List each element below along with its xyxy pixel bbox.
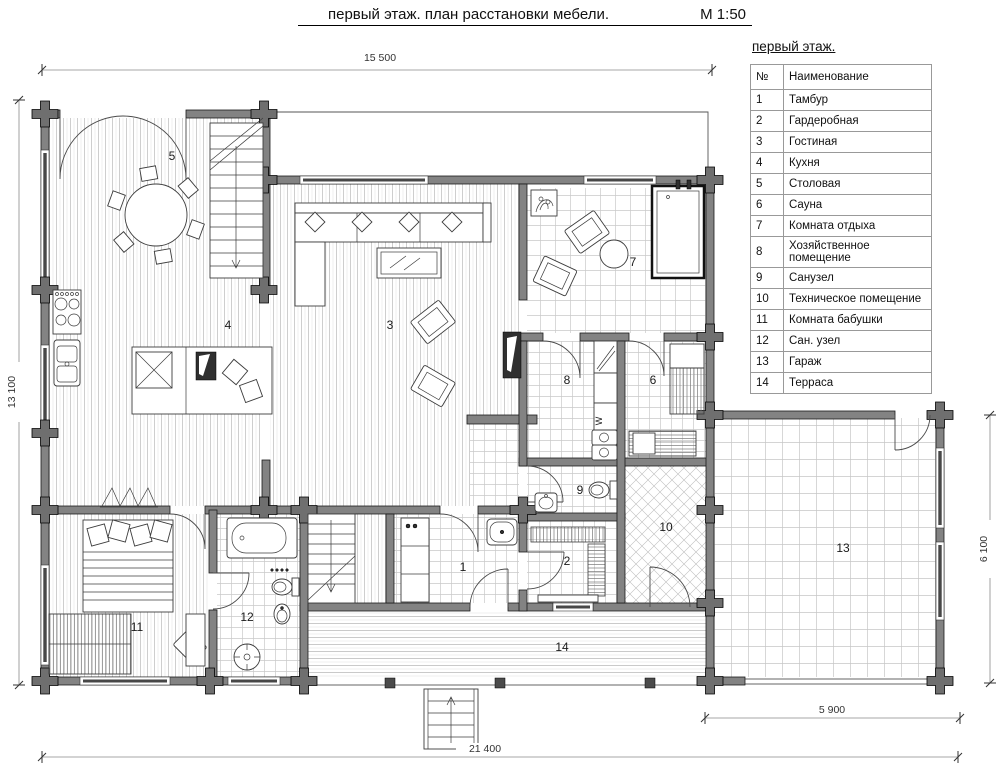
table-row: 7Комната отдыха <box>751 216 932 237</box>
coffee-table <box>377 248 441 278</box>
table-row: 2Гардеробная <box>751 111 932 132</box>
table-row: 3Гостиная <box>751 132 932 153</box>
washer-label: W <box>594 416 604 425</box>
table-row: 9Санузел <box>751 268 932 289</box>
dim-bottom-right: 5 900 <box>819 704 845 716</box>
room-label-12: 12 <box>240 610 254 624</box>
dim-right: 6 100 <box>978 536 990 562</box>
room-label-10: 10 <box>659 520 673 534</box>
drawing-title: первый этаж. план расстановки мебели. М … <box>298 6 752 26</box>
table-row: 1Тамбур <box>751 90 932 111</box>
entry-steps <box>424 689 478 749</box>
utility-cabinets: W <box>594 341 617 430</box>
col-number: № <box>751 65 784 90</box>
scale-label: М 1:50 <box>700 6 746 23</box>
room-label-14: 14 <box>555 640 569 654</box>
shower-tray <box>487 519 517 545</box>
terrace-posts <box>385 678 655 688</box>
laundry-sinks <box>592 430 617 460</box>
table-row: 4Кухня <box>751 153 932 174</box>
vestibule-cabinet <box>401 518 429 602</box>
kitchen-island <box>132 347 272 414</box>
table-row: 12Сан. узел <box>751 331 932 352</box>
pool <box>652 180 704 278</box>
dim-left: 13 100 <box>6 376 18 408</box>
room-label-8: 8 <box>564 373 571 387</box>
table-row: 13Гараж <box>751 352 932 373</box>
table-row: 8Хозяйственное помещение <box>751 237 932 268</box>
dim-top: 15 500 <box>364 52 396 64</box>
plant <box>531 190 557 216</box>
dim-bottom: 21 400 <box>469 743 501 755</box>
room-legend: первый этаж. № Наименование 1Тамбур 2Гар… <box>750 38 938 394</box>
table-header-row: № Наименование <box>751 65 932 90</box>
kitchen-sink <box>54 340 80 386</box>
room-label-1: 1 <box>460 560 467 574</box>
room-table: № Наименование 1Тамбур 2Гардеробная 3Гос… <box>750 64 932 394</box>
room-label-3: 3 <box>387 318 394 332</box>
wardrobe-11 <box>49 614 131 674</box>
wc-basin <box>535 493 557 512</box>
room-label-6: 6 <box>650 373 657 387</box>
page-title: первый этаж. план расстановки мебели. <box>328 6 609 23</box>
room-label-11: 11 <box>131 620 144 634</box>
kitchen-stove <box>53 290 81 334</box>
room-label-5: 5 <box>169 149 176 163</box>
room-label-2: 2 <box>564 554 571 568</box>
table-row: 6Сауна <box>751 195 932 216</box>
legend-header: первый этаж. <box>752 39 835 54</box>
bidet <box>274 604 290 624</box>
col-name: Наименование <box>784 65 932 90</box>
room-label-7: 7 <box>630 255 637 269</box>
table-row: 5Столовая <box>751 174 932 195</box>
room-label-9: 9 <box>577 483 584 497</box>
floor-plan-page: W <box>0 0 1000 764</box>
room-label-13: 13 <box>836 541 850 555</box>
stairs-hall <box>308 514 355 603</box>
room-label-4: 4 <box>225 318 232 332</box>
wc-toilet <box>589 481 617 499</box>
stairs-upper <box>210 118 263 278</box>
table-row: 10Техническое помещение <box>751 289 932 310</box>
toilet-12 <box>272 578 299 596</box>
fireplace <box>503 332 521 378</box>
balcony-outline <box>267 112 708 178</box>
shower-12 <box>234 644 260 670</box>
bed <box>83 520 173 612</box>
table-row: 14Терраса <box>751 373 932 394</box>
table-row: 11Комната бабушки <box>751 310 932 331</box>
